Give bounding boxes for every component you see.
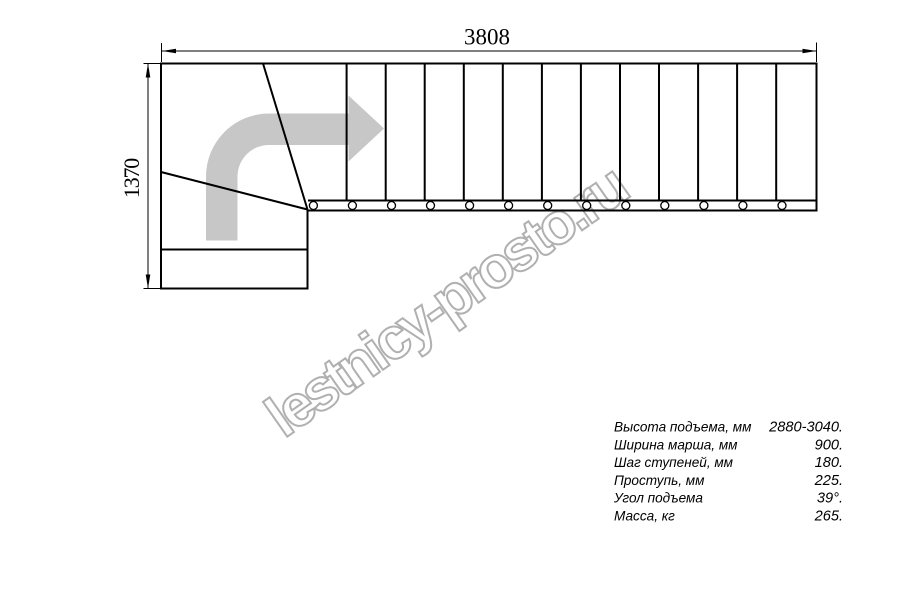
svg-text:180.: 180.	[815, 455, 843, 471]
svg-text:Высота подъема, мм: Высота подъема, мм	[614, 420, 752, 435]
svg-text:Шаг ступеней, мм: Шаг ступеней, мм	[614, 455, 734, 470]
svg-text:3808: 3808	[464, 25, 510, 50]
svg-text:Ширина марша, мм: Ширина марша, мм	[614, 437, 738, 452]
svg-text:Проступь, мм: Проступь, мм	[614, 473, 705, 488]
svg-text:265.: 265.	[814, 509, 843, 525]
svg-text:39°.: 39°.	[817, 491, 843, 507]
svg-text:225.: 225.	[814, 473, 843, 489]
svg-text:2880-3040.: 2880-3040.	[768, 420, 843, 436]
svg-text:900.: 900.	[815, 437, 843, 453]
svg-text:Масса, кг: Масса, кг	[614, 509, 675, 524]
svg-text:Угол подъема: Угол подъема	[613, 491, 703, 506]
svg-text:1370: 1370	[119, 158, 144, 198]
